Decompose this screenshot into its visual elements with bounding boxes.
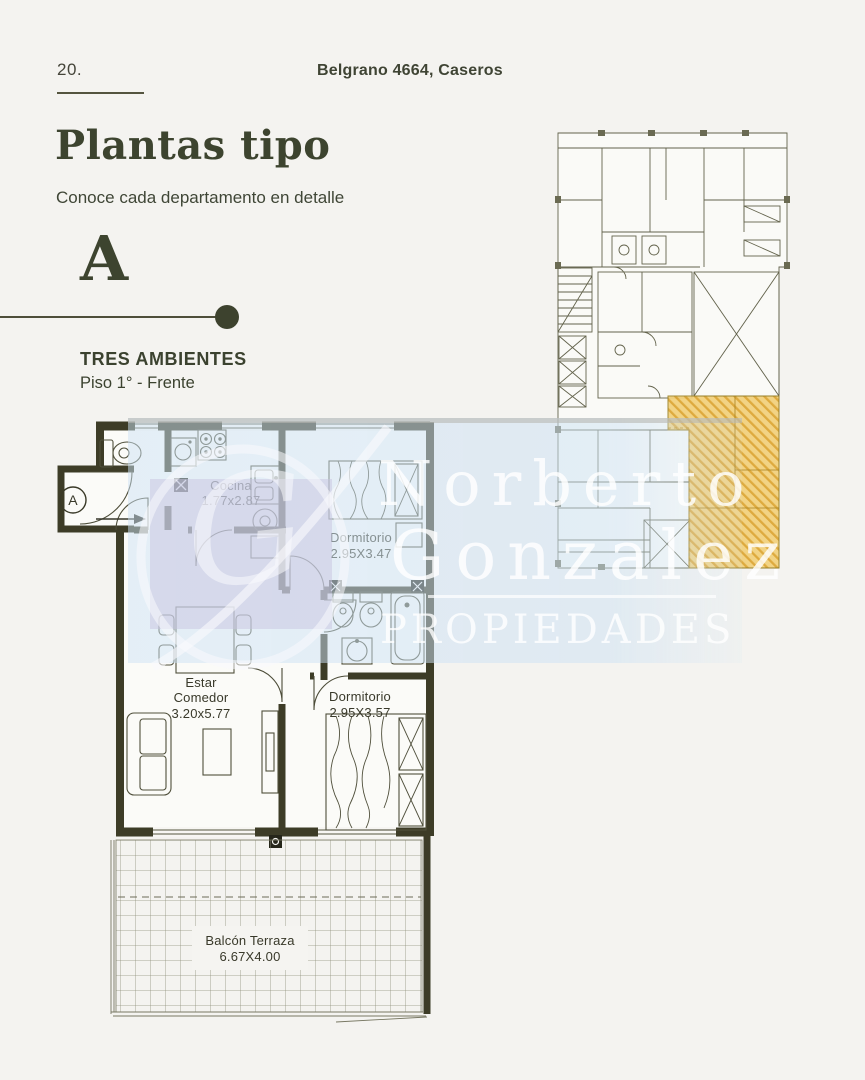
room-label-cocina: Cocina: [210, 478, 252, 493]
room-dims-dormitorio-1: 2.95X3.47: [330, 546, 391, 561]
page-number-underline: [57, 92, 144, 94]
balcony: [111, 840, 427, 1022]
room-dims-dormitorio-2: 2.95X3.57: [329, 705, 390, 720]
room-label-dormitorio-1: Dormitorio: [330, 530, 392, 545]
divider-line: [0, 316, 220, 318]
apartment-floor-plan: A: [57, 421, 430, 1022]
entrance-marker-label: A: [68, 492, 78, 508]
page-title: Plantas tipo: [55, 122, 330, 169]
unit-type: TRES AMBIENTES: [80, 349, 247, 370]
room-label-balcon: Balcón Terraza: [205, 933, 295, 948]
brochure-page: 20. Belgrano 4664, Caseros Plantas tipo …: [0, 0, 865, 1080]
address-label: Belgrano 4664, Caseros: [317, 62, 503, 80]
room-label-dormitorio-2: Dormitorio: [329, 689, 391, 704]
room-dims-cocina: 1.77x2.87: [202, 493, 261, 508]
page-subtitle: Conoce cada departamento en detalle: [56, 188, 344, 208]
apartment-interior: [96, 422, 430, 836]
divider-dot: [215, 305, 239, 329]
room-label-comedor: Comedor: [174, 690, 229, 705]
page-number: 20.: [57, 60, 82, 80]
room-dims-estar-comedor: 3.20x5.77: [172, 706, 231, 721]
room-dims-balcon: 6.67X4.00: [219, 949, 280, 964]
room-label-estar: Estar: [185, 675, 217, 690]
unit-letter: A: [80, 228, 128, 290]
unit-floor: Piso 1° - Frente: [80, 374, 195, 393]
